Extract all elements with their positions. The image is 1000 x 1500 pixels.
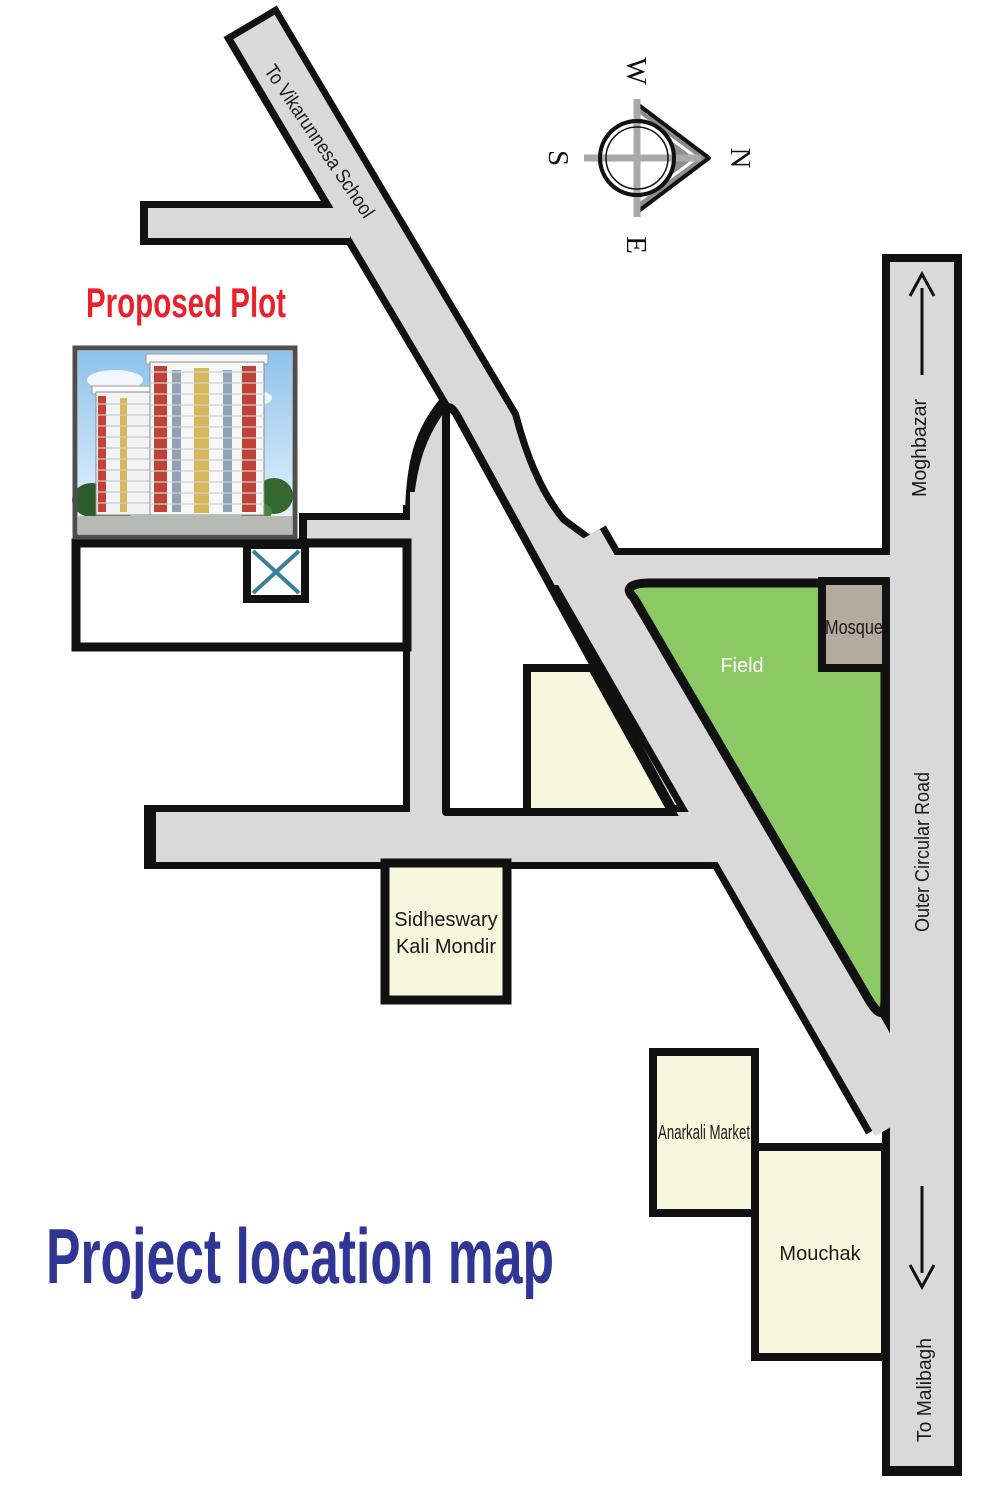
anarkali-label: Anarkali Market (658, 1122, 750, 1144)
mosque-label: Mosque (825, 617, 883, 639)
sidheswary-block (385, 863, 507, 1000)
location-map-svg: W N E S Proposed Plot To Vikarunnesa Sch… (0, 0, 1000, 1500)
sidheswary-label-line2: Kali Mondir (396, 936, 496, 958)
photo-yellow-strip (194, 368, 209, 513)
mouchak-label: Mouchak (779, 1243, 861, 1265)
building-photo (72, 348, 295, 537)
plot-marker (243, 541, 309, 603)
photo-ground (78, 516, 292, 534)
compass-south-label: S (542, 150, 574, 166)
photo-glass-strip (223, 370, 232, 512)
page-title: Project location map (46, 1212, 554, 1300)
photo-glass-strip (172, 370, 181, 512)
sidheswary-label-line1: Sidheswary (394, 909, 497, 931)
compass-west-label: W (620, 57, 652, 85)
map-canvas: W N E S Proposed Plot To Vikarunnesa Sch… (0, 0, 1000, 1500)
field-label: Field (720, 655, 763, 677)
malibagh-road-label: To Malibagh (914, 1338, 936, 1442)
photo-red-strip (242, 366, 256, 512)
compass-east-label: E (620, 236, 652, 254)
photo-tower-left-red-strip (98, 396, 106, 512)
proposed-plot-block (76, 543, 407, 647)
moghbazar-road-label: Moghbazar (909, 399, 931, 497)
photo-red-strip (154, 366, 167, 512)
compass-north-label: N (724, 148, 756, 169)
proposed-plot-label: Proposed Plot (86, 279, 286, 326)
outer-circular-road-label: Outer Circular Road (912, 772, 934, 932)
